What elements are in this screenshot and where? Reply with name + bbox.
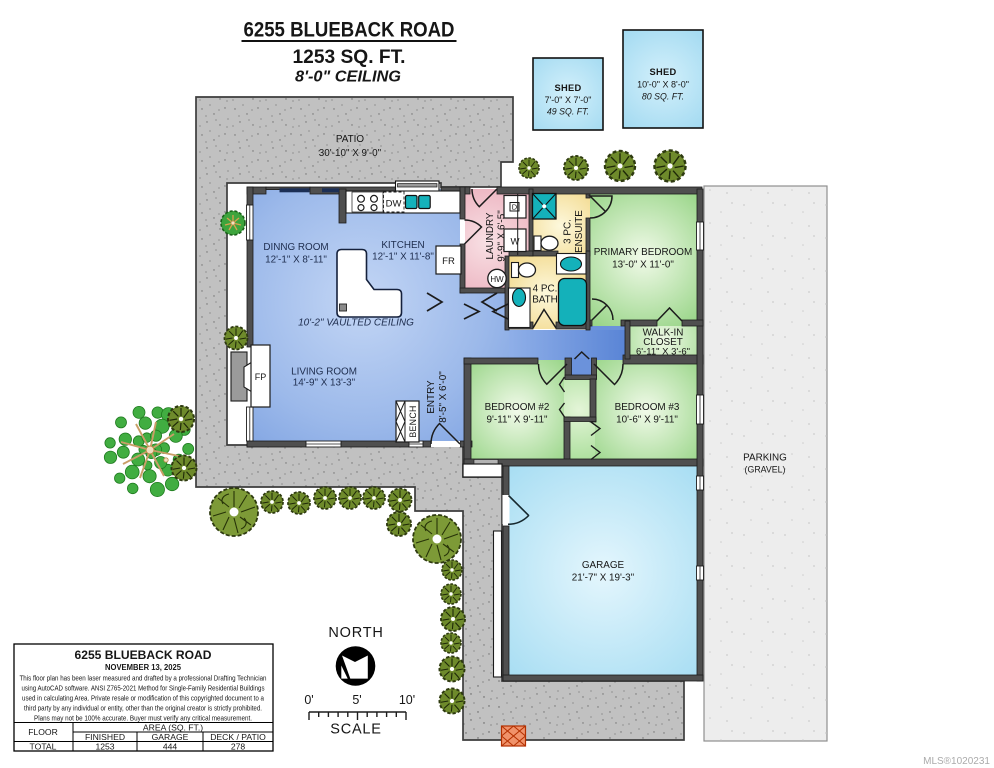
svg-text:5': 5' (352, 693, 361, 707)
svg-text:FP: FP (255, 372, 267, 382)
svg-text:7'-0" X 7'-0": 7'-0" X 7'-0" (545, 95, 592, 105)
svg-text:1253: 1253 (95, 742, 114, 752)
svg-text:21'-7" X 19'-3": 21'-7" X 19'-3" (572, 573, 635, 584)
svg-text:BEDROOM #3: BEDROOM #3 (615, 402, 680, 413)
svg-text:9'-11" X 9'-11": 9'-11" X 9'-11" (487, 415, 548, 426)
svg-text:4 PC.: 4 PC. (533, 284, 558, 295)
svg-text:80 SQ. FT.: 80 SQ. FT. (642, 92, 684, 102)
svg-text:8'-5" X 6'-0": 8'-5" X 6'-0" (438, 371, 449, 423)
svg-text:SHED: SHED (554, 83, 581, 93)
svg-text:NORTH: NORTH (328, 625, 383, 641)
svg-text:BEDROOM #2: BEDROOM #2 (485, 402, 550, 413)
svg-text:(GRAVEL): (GRAVEL) (745, 465, 786, 475)
svg-text:KITCHEN: KITCHEN (381, 240, 424, 251)
svg-text:3 PC.: 3 PC. (563, 219, 574, 244)
svg-text:10'-2" VAULTED CEILING: 10'-2" VAULTED CEILING (298, 318, 414, 329)
svg-text:BENCH: BENCH (408, 405, 418, 437)
svg-text:FINISHED: FINISHED (85, 732, 125, 742)
svg-text:PARKING: PARKING (743, 453, 787, 464)
svg-text:DINNG ROOM: DINNG ROOM (263, 242, 328, 253)
svg-text:278: 278 (231, 742, 246, 752)
svg-text:DECK / PATIO: DECK / PATIO (210, 732, 266, 742)
svg-text:HW: HW (490, 275, 504, 284)
svg-text:GARAGE: GARAGE (152, 732, 189, 742)
svg-text:10'-0" X 8'-0": 10'-0" X 8'-0" (637, 80, 689, 90)
svg-text:ENTRY: ENTRY (426, 380, 437, 414)
svg-text:10'-6" X 9'-11": 10'-6" X 9'-11" (616, 415, 678, 426)
svg-text:49 SQ. FT.: 49 SQ. FT. (547, 107, 589, 117)
svg-text:D: D (512, 203, 518, 212)
svg-text:NOVEMBER 13, 2025: NOVEMBER 13, 2025 (105, 662, 181, 672)
svg-text:GARAGE: GARAGE (582, 560, 625, 571)
svg-text:BATH: BATH (532, 295, 558, 306)
svg-text:30'-10" X 9'-0": 30'-10" X 9'-0" (319, 148, 382, 159)
svg-text:12'-1" X 8'-11": 12'-1" X 8'-11" (265, 255, 327, 266)
svg-text:14'-9" X 13'-3": 14'-9" X 13'-3" (293, 378, 356, 389)
svg-text:13'-0" X 11'-0": 13'-0" X 11'-0" (612, 260, 674, 271)
svg-text:444: 444 (163, 742, 178, 752)
svg-text:12'-1" X 11'-8": 12'-1" X 11'-8" (372, 252, 434, 263)
svg-text:LAUNDRY: LAUNDRY (485, 212, 496, 259)
svg-text:LIVING ROOM: LIVING ROOM (291, 367, 357, 378)
svg-text:This floor plan has been laser: This floor plan has been laser measured … (20, 676, 267, 683)
svg-text:6255 BLUEBACK ROAD: 6255 BLUEBACK ROAD (244, 18, 455, 42)
svg-text:using AutoCAD software. ANSI Z: using AutoCAD software. ANSI Z765-2021 M… (22, 686, 265, 693)
svg-text:Plans may not be 100% accurate: Plans may not be 100% accurate. Buyer mu… (34, 716, 252, 723)
svg-text:SHED: SHED (649, 67, 676, 77)
svg-text:FR: FR (442, 256, 455, 267)
svg-text:ENSUITE: ENSUITE (574, 210, 585, 253)
svg-text:1253 SQ. FT.: 1253 SQ. FT. (293, 46, 406, 68)
svg-text:TOTAL: TOTAL (30, 742, 57, 752)
svg-text:PRIMARY BEDROOM: PRIMARY BEDROOM (594, 247, 692, 258)
svg-text:third party by any individual: third party by any individual or entity,… (24, 706, 262, 713)
svg-text:PATIO: PATIO (336, 134, 364, 145)
svg-text:8'-0" CEILING: 8'-0" CEILING (295, 69, 401, 86)
svg-text:10': 10' (399, 693, 415, 707)
svg-text:6255 BLUEBACK ROAD: 6255 BLUEBACK ROAD (75, 650, 212, 662)
svg-text:0': 0' (304, 693, 313, 707)
svg-text:SCALE: SCALE (330, 722, 382, 738)
svg-text:FLOOR: FLOOR (28, 727, 58, 737)
svg-text:used in calculating Area. Priv: used in calculating Area. Private resale… (22, 696, 264, 703)
svg-text:MLS®1020231: MLS®1020231 (923, 756, 990, 767)
svg-text:DW: DW (386, 199, 402, 210)
